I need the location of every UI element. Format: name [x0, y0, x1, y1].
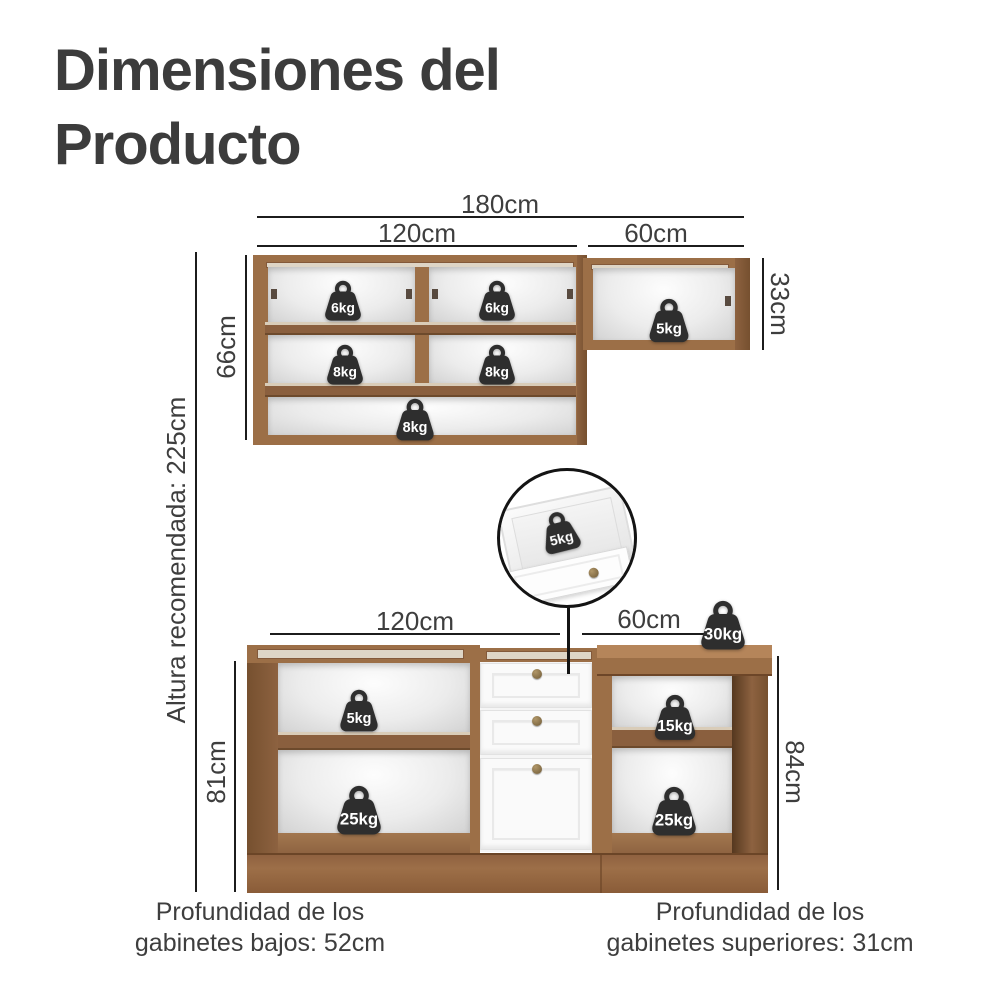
upper-shelf-2: [265, 383, 576, 397]
drawer-2: [480, 710, 592, 755]
weight-icon: 25kg: [331, 785, 387, 837]
cabinet-post: [470, 663, 480, 855]
dimension-line-lower-left-width: [270, 633, 560, 635]
weight-label: 30kg: [704, 625, 742, 644]
weight-icon: 8kg: [391, 398, 439, 443]
weight-icon: 6kg: [474, 280, 520, 323]
hinge-icon: [406, 289, 412, 299]
weight-icon: 25kg: [646, 786, 702, 838]
weight-label: 15kg: [657, 718, 693, 735]
open-top-rim: [247, 645, 480, 663]
drawer-panel: [492, 768, 580, 840]
weight-icon: 8kg: [474, 344, 520, 387]
dimension-label-lower-right-width: 60cm: [589, 604, 709, 635]
product-dimensions-diagram: Dimensiones del Producto 180cm 120cm 60c…: [0, 0, 1000, 1000]
weight-icon: 5kg: [644, 298, 694, 345]
lower-cabinet-drawers: [480, 648, 600, 855]
upper-shelf-1: [265, 322, 576, 335]
inset-connector-line: [567, 604, 570, 674]
weight-icon: 30kg: [695, 600, 751, 652]
page-title-line1: Dimensiones del: [54, 34, 500, 108]
dimension-line-recommended-height: [195, 252, 197, 892]
cabinet-post: [600, 676, 612, 855]
hinge-icon: [725, 296, 731, 306]
weight-icon: 8kg: [322, 344, 368, 387]
caption-line: Profundidad de los: [565, 897, 955, 928]
weight-icon: 8kg: [322, 344, 368, 387]
drawer-1: [480, 663, 592, 708]
cabinet-side-panel: [735, 258, 750, 350]
dimension-label-upper-height: 66cm: [211, 297, 241, 397]
open-top-rim: [480, 648, 600, 662]
caption-line: Profundidad de los: [90, 897, 430, 928]
weight-icon: 6kg: [320, 280, 366, 323]
lower-left-shelf: [278, 732, 470, 750]
cabinet-base: [247, 853, 768, 893]
weight-icon: 5kg: [644, 298, 694, 345]
drawer-knob-icon: [532, 669, 542, 679]
dimension-label-lower-right-height: 84cm: [780, 722, 810, 822]
dimension-line-upper-right-width: [588, 245, 744, 247]
cabinet-side-panel: [247, 663, 278, 855]
dimension-line-lower-right-height: [777, 656, 779, 890]
cabinet-inner-wall: [732, 676, 752, 855]
hinge-icon: [567, 289, 573, 299]
weight-icon: 6kg: [474, 280, 520, 323]
weight-icon: 8kg: [391, 398, 439, 443]
drawer-3: [480, 758, 592, 850]
base-seam: [600, 855, 602, 893]
dimension-line-upper-right-height: [762, 258, 764, 350]
caption-line: gabinetes bajos: 52cm: [90, 928, 430, 959]
weight-label: 8kg: [485, 365, 509, 380]
weight-label: 8kg: [333, 365, 357, 380]
dimension-label-upper-right-height: 33cm: [765, 254, 795, 354]
weight-icon: 15kg: [649, 694, 701, 743]
weight-icon: 5kg: [335, 689, 383, 734]
open-top-interior: [486, 651, 592, 660]
weight-label: 6kg: [331, 301, 355, 316]
dimension-line-upper-height: [245, 255, 247, 440]
weight-label: 25kg: [655, 811, 693, 830]
weight-icon: 25kg: [646, 786, 702, 838]
hinge-icon: [432, 289, 438, 299]
dimension-line-upper-left-width: [257, 245, 577, 247]
hinge-icon: [271, 289, 277, 299]
weight-label: 5kg: [656, 320, 682, 337]
dimension-line-lower-left-height: [234, 661, 236, 892]
cabinet-side-panel: [752, 676, 768, 855]
caption-upper-cabinets: Profundidad de los gabinetes superiores:…: [565, 897, 955, 959]
page-title: Dimensiones del Producto: [54, 34, 500, 182]
drawer-knob-icon: [532, 716, 542, 726]
weight-label: 6kg: [485, 301, 509, 316]
drawer-knob-icon: [532, 764, 542, 774]
weight-icon: 8kg: [474, 344, 520, 387]
weight-label: 8kg: [403, 420, 428, 436]
weight-icon: 5kg: [335, 689, 383, 734]
weight-icon: 30kg: [695, 600, 751, 652]
weight-label: 5kg: [347, 711, 372, 727]
caption-lower-cabinets: Profundidad de los gabinetes bajos: 52cm: [90, 897, 430, 959]
dimension-label-lower-left-height: 81cm: [201, 722, 231, 822]
caption-line: gabinetes superiores: 31cm: [565, 928, 955, 959]
weight-label: 25kg: [340, 810, 378, 829]
weight-icon: 25kg: [331, 785, 387, 837]
drawer-stack: [480, 662, 592, 852]
countertop-edge: [597, 658, 772, 676]
dimension-label-recommended-height: Altura recomendada: 225cm: [161, 380, 191, 740]
weight-icon: 6kg: [320, 280, 366, 323]
page-title-line2: Producto: [54, 108, 500, 182]
open-top-interior: [257, 649, 464, 659]
weight-icon: 15kg: [649, 694, 701, 743]
cabinet-post: [592, 648, 600, 855]
